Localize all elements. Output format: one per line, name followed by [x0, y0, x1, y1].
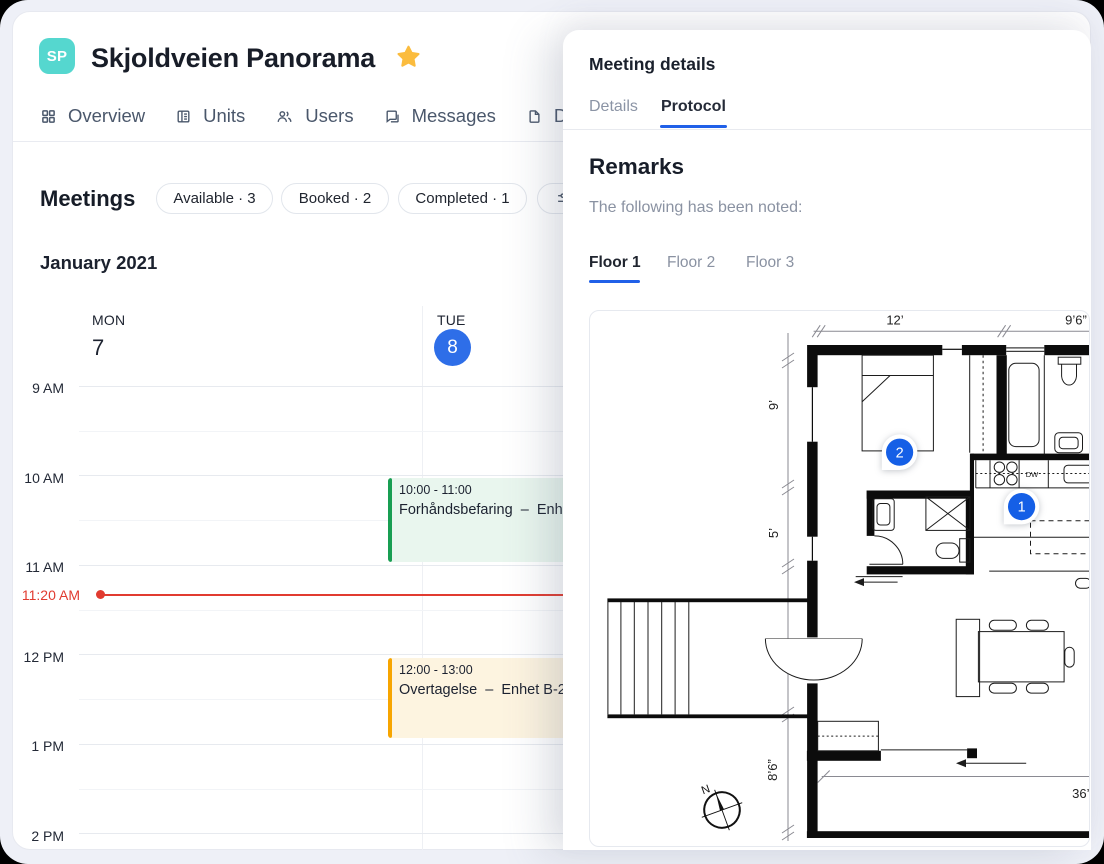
- svg-text:36’: 36’: [1072, 786, 1089, 801]
- svg-text:1: 1: [1018, 500, 1026, 516]
- svg-text:12’: 12’: [886, 313, 903, 328]
- svg-text:5’: 5’: [766, 528, 781, 538]
- svg-text:9’6”: 9’6”: [1065, 313, 1087, 328]
- svg-text:DW: DW: [1026, 470, 1039, 479]
- svg-text:9’: 9’: [766, 400, 781, 410]
- svg-text:8’6”: 8’6”: [765, 759, 780, 781]
- svg-text:2: 2: [896, 445, 904, 461]
- svg-text:N: N: [700, 783, 712, 797]
